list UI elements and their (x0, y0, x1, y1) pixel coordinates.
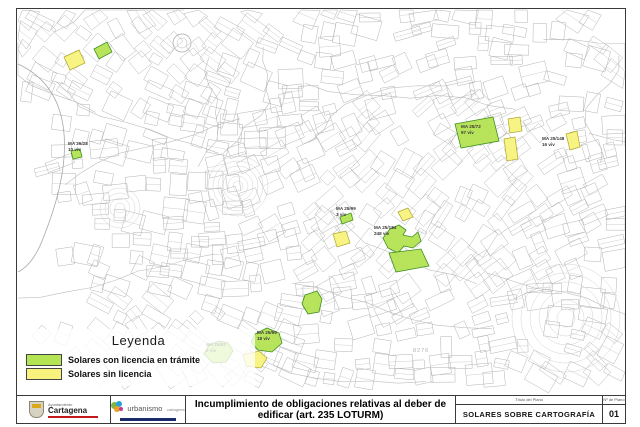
map-sheet-ref-number: 8276 (413, 348, 429, 354)
logo-red-bar (48, 416, 98, 418)
map-plot-label: MA 25/148 (542, 136, 565, 141)
blob-pink (119, 407, 123, 411)
document-title-line2: edificar (art. 235 LOTURM) (258, 410, 384, 421)
document-title-cell: Incumplimiento de obligaciones relativas… (186, 396, 456, 423)
logo-cartagena-name: Cartagena (48, 407, 87, 415)
logo-urbanismo-text: urbanismo cartagena (127, 398, 184, 416)
map-plot-yellow (64, 50, 85, 70)
plan-title-cell: Título del Plano SOLARES SOBRE CARTOGRAF… (456, 396, 603, 423)
urbanismo-blue-bar (120, 418, 176, 421)
legend: Leyenda Solares con licencia en trámite … (22, 329, 255, 386)
map-plot-green (389, 249, 429, 272)
title-block: Ayuntamiento Cartagena (17, 395, 625, 423)
map-plot-green (302, 291, 322, 314)
logo-ayuntamiento-cartagena: Ayuntamiento Cartagena (17, 396, 111, 423)
plan-title: SOLARES SOBRE CARTOGRAFÍA (463, 410, 595, 419)
map-plot-label: 3 viv (336, 212, 347, 217)
map-plot-yellow (566, 131, 580, 150)
map-plot-label: 248 viv (374, 231, 390, 236)
map-plot-label: MA 25/72 (461, 124, 481, 129)
map-plot-yellow (504, 137, 518, 161)
plan-number-cell: Nº de Plano 01 (603, 396, 625, 423)
logo-urbanismo: urbanismo cartagena (111, 396, 186, 423)
logo-urbanismo-inner: urbanismo cartagena (111, 396, 185, 423)
urbanismo-sub: cartagena (167, 407, 185, 412)
map-plot-label: 18 viv (257, 336, 270, 341)
urbanismo-name: urbanismo (127, 404, 162, 413)
map-plot-yellow (508, 117, 522, 133)
legend-label-con-licencia: Solares con licencia en trámite (68, 355, 200, 365)
map-plot-yellow (398, 208, 413, 221)
legend-label-sin-licencia: Solares sin licencia (68, 369, 152, 379)
legend-swatch-green (26, 354, 62, 366)
map-plot-label: 16 viv (542, 142, 555, 147)
map-plot-yellow (333, 231, 350, 247)
document-title-line1: Incumplimiento de obligaciones relativas… (195, 399, 446, 410)
map-plot-label: MA 25/69 (257, 330, 277, 335)
map-plot-label: 10 viv (68, 147, 81, 152)
plan-number: 01 (609, 409, 619, 419)
map-plot-label: 97 viv (461, 130, 474, 135)
logo-ayuntamiento-text: Ayuntamiento Cartagena (48, 402, 98, 418)
map-plot-label: MA 26/28 (68, 141, 88, 146)
plan-sheet: MA 26/2810 vivMA 25/632 vivMA 25/6918 vi… (0, 0, 640, 427)
legend-item-con-licencia: Solares con licencia en trámite (26, 354, 251, 366)
logo-ayuntamiento-inner: Ayuntamiento Cartagena (29, 401, 98, 418)
legend-swatch-yellow (26, 368, 62, 380)
map-plot-label: MA 25/184 (374, 225, 397, 230)
cartagena-crest-icon (29, 401, 44, 418)
legend-title: Leyenda (26, 333, 251, 348)
urbanismo-map-icon (111, 401, 124, 413)
plan-number-caption: Nº de Plano (603, 396, 625, 405)
map-plot-label: MA 25/99 (336, 206, 356, 211)
legend-item-sin-licencia: Solares sin licencia (26, 368, 251, 380)
plan-title-caption: Título del Plano (456, 396, 602, 405)
map-plot-green (94, 42, 112, 59)
logo-urbanismo-row: urbanismo cartagena (111, 398, 184, 416)
